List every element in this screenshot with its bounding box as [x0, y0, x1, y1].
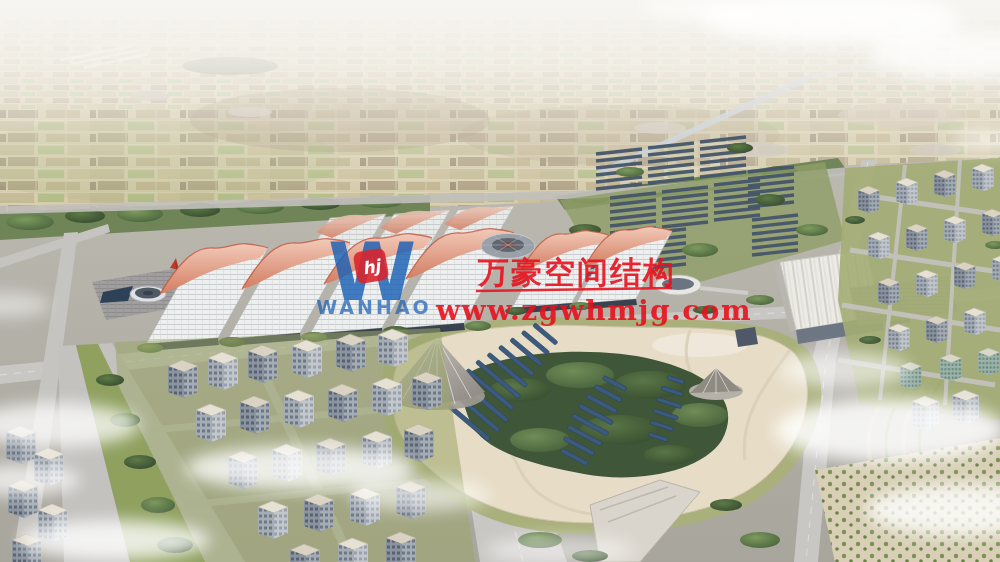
building — [328, 384, 358, 422]
scene-canvas: W hj WANHAO 万豪空间结构 www.zgwhmjg.com — [0, 0, 1000, 562]
building — [208, 352, 238, 390]
building — [412, 372, 442, 410]
building — [404, 424, 434, 462]
building — [386, 532, 416, 562]
building — [168, 360, 198, 398]
building — [292, 340, 322, 378]
aerial-rendering: W hj WANHAO 万豪空间结构 www.zgwhmjg.com — [0, 0, 1000, 562]
watermark-company-name: 万豪空间结构 — [477, 254, 676, 290]
building — [258, 501, 288, 539]
building — [304, 494, 334, 532]
building — [196, 404, 226, 442]
building — [378, 329, 408, 367]
building — [284, 390, 314, 428]
logo-wordmark: WANHAO — [316, 296, 431, 318]
building — [336, 334, 366, 372]
city-blocks-east — [838, 158, 1000, 430]
watermark-website: www.zgwhmjg.com — [435, 294, 752, 327]
watermark-logo: W hj WANHAO — [316, 226, 431, 319]
building — [248, 345, 278, 383]
building — [372, 378, 402, 416]
service-building — [735, 327, 758, 347]
building — [240, 396, 270, 434]
